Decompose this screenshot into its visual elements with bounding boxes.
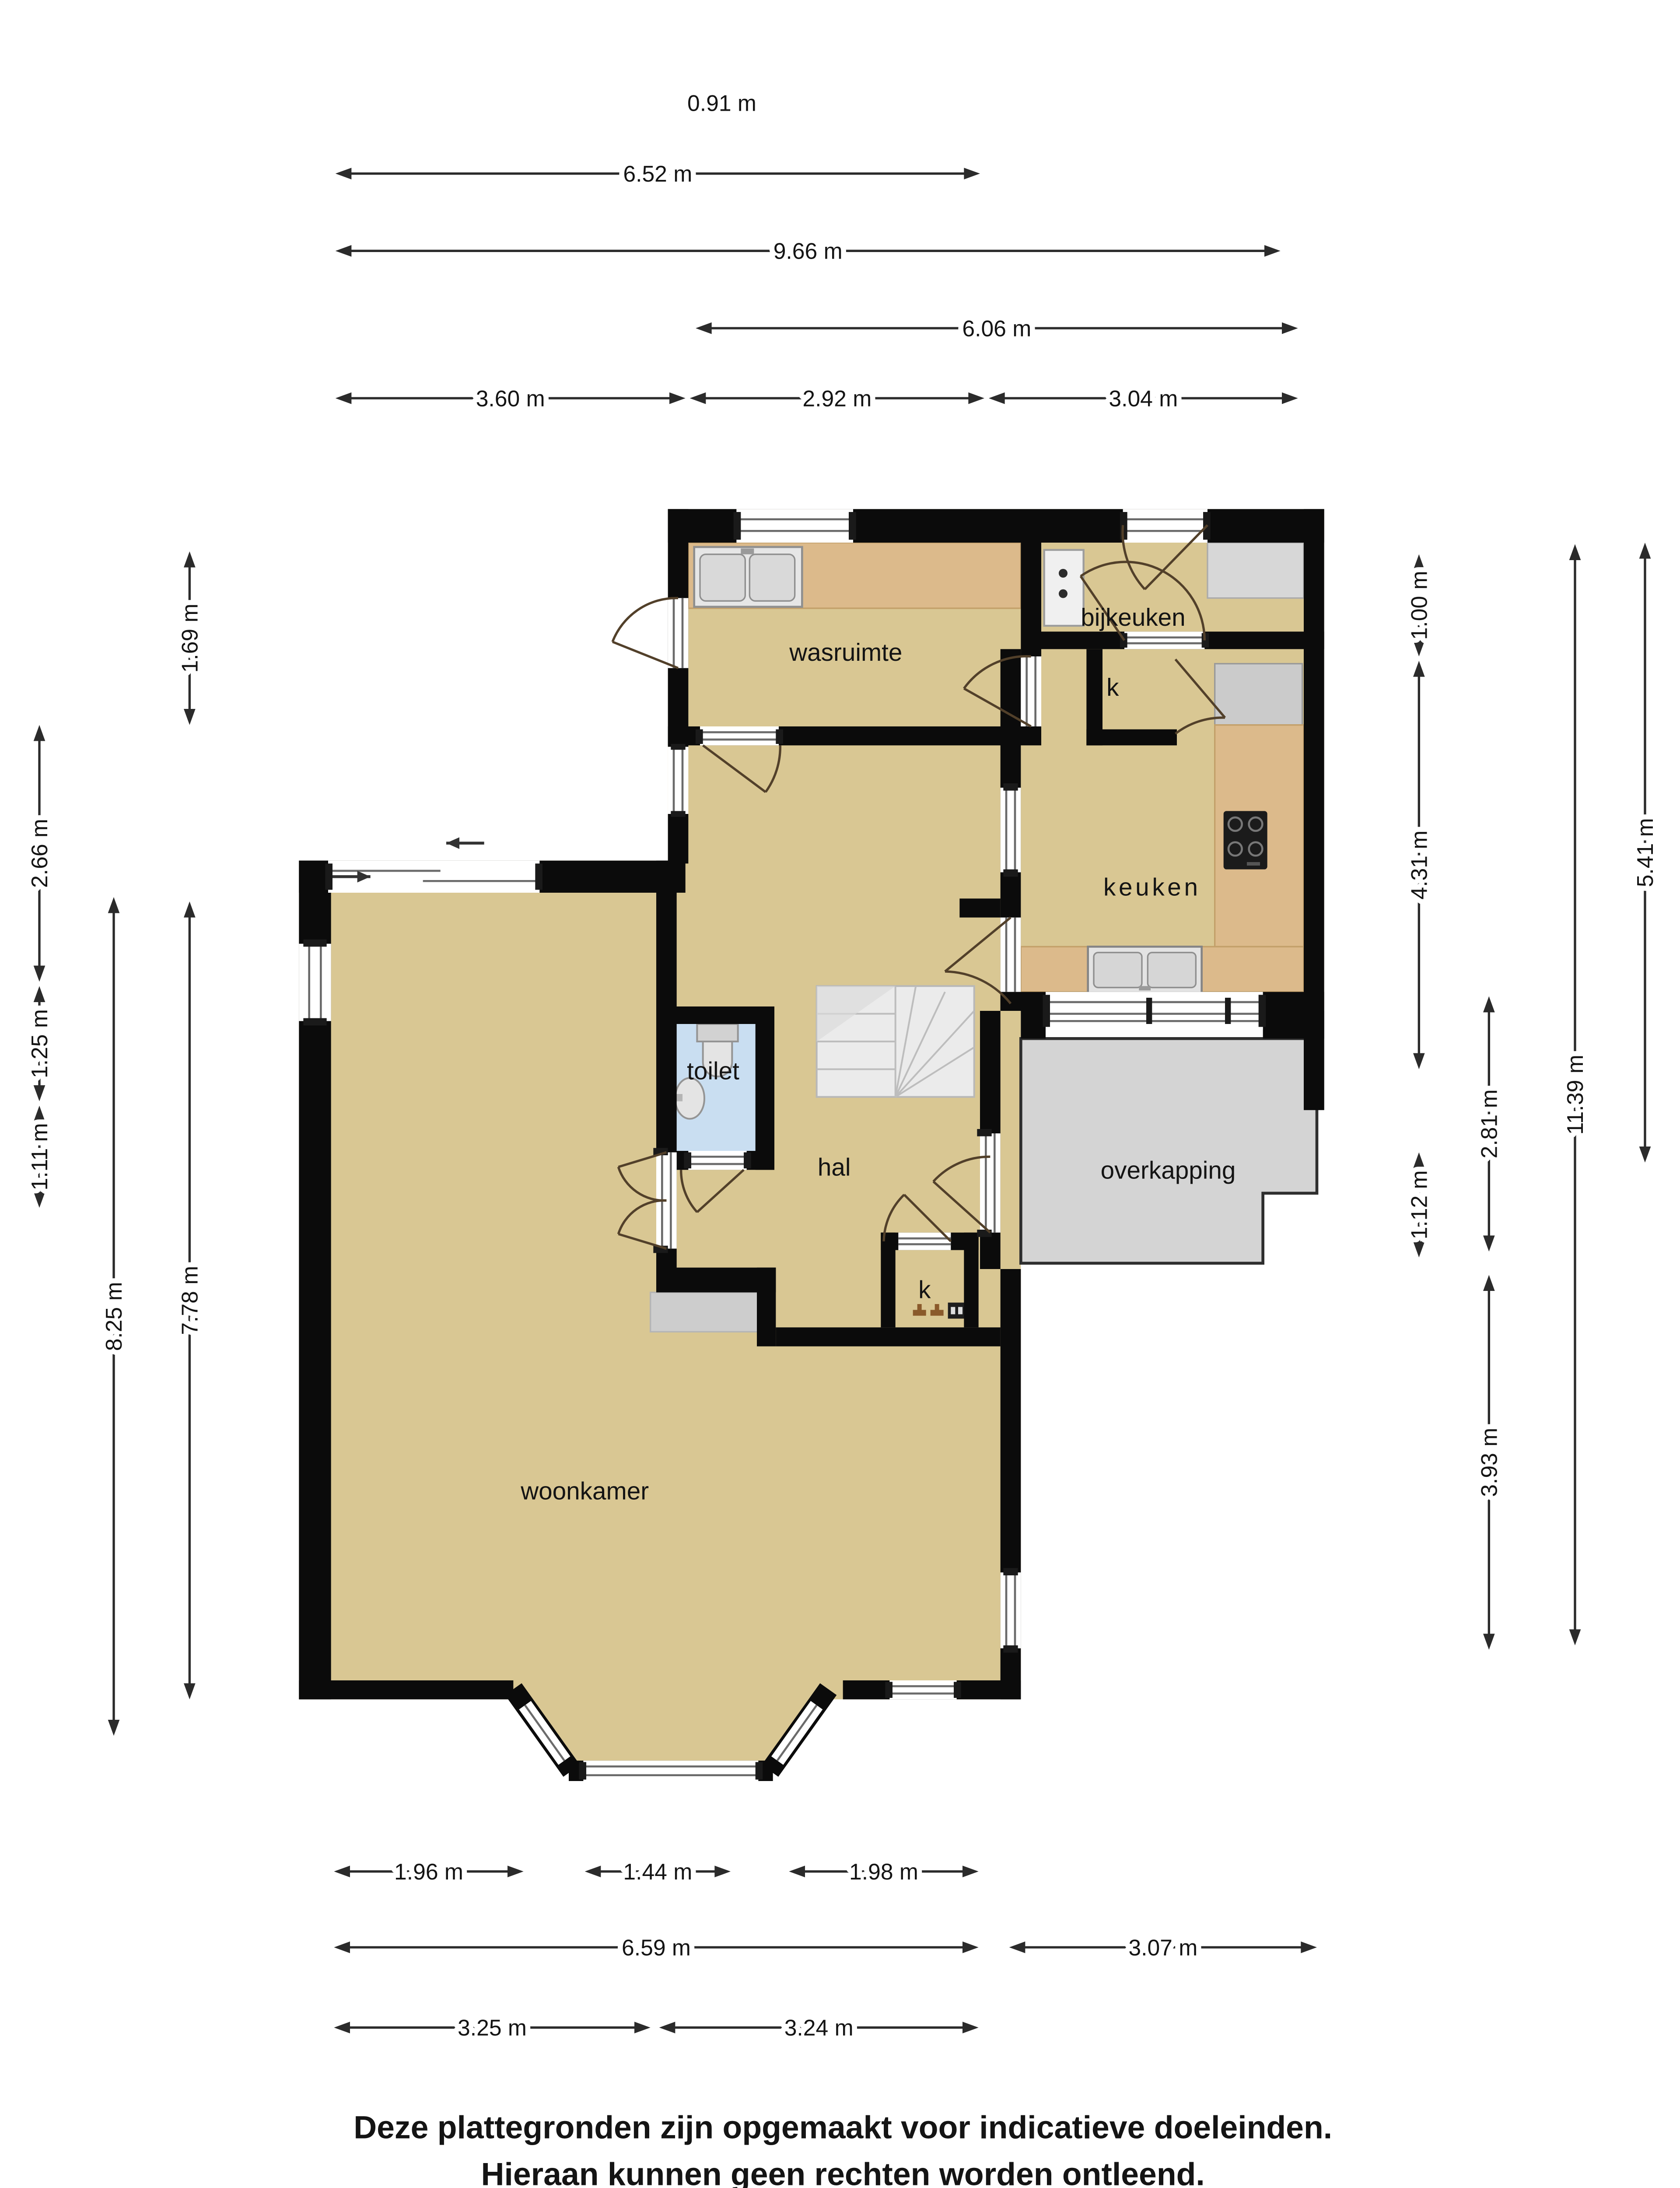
fridge-counter-icon (1215, 664, 1302, 725)
dimension: 2.92 m (690, 386, 984, 411)
dimension: 1.44 m (585, 1859, 731, 1884)
window-keuken-interior (1001, 783, 1021, 877)
window-woonkamer-bottom (885, 1680, 961, 1699)
double-sink-icon (694, 547, 802, 607)
dimension-label: 4.31 m (1406, 831, 1431, 900)
door-wasruimte-exterior (612, 598, 688, 668)
dimension: 2.81 m (1476, 996, 1501, 1252)
dimension: 9.66 m (336, 238, 1281, 264)
doormat-icon (651, 1292, 764, 1332)
dimension: 4.31 m (1406, 661, 1431, 1069)
room-label-k1: k (1106, 674, 1119, 701)
dimension-label: 8.25 m (101, 1282, 126, 1351)
disclaimer-line-2: Hieraan kunnen geen rechten worden ontle… (481, 2156, 1205, 2188)
dimension: 6.06 m (696, 316, 1298, 341)
dimension: 1.11 m (27, 1106, 52, 1208)
dimension-label: 7.78 m (177, 1266, 202, 1335)
floors (299, 509, 1324, 1771)
dimension: 6.52 m (336, 161, 980, 186)
window-landing-left (668, 744, 689, 817)
room-label-wasruimte: wasruimte (789, 639, 902, 666)
dimension: 3.93 m (1476, 1275, 1501, 1650)
room-label-overkapping: overkapping (1101, 1157, 1236, 1184)
dimension: 8.25 m (101, 897, 126, 1736)
dimension-label: 1.12 m (1406, 1170, 1431, 1239)
dimension-label: 1.69 m (177, 603, 202, 673)
room-label-toilet: toilet (687, 1058, 739, 1085)
dimension-label: 3.25 m (458, 2015, 527, 2041)
room-label-bijkeuken: bijkeuken (1081, 604, 1185, 631)
dimension-label: 3.04 m (1109, 386, 1178, 411)
dimension: 1.96 m (334, 1859, 523, 1884)
dimension-label: 3.07 m (1128, 1935, 1197, 1960)
room-label-keuken: keuken (1103, 874, 1201, 901)
dimension: 6.59 m (334, 1935, 978, 1960)
dimension: 1.25 m (27, 986, 52, 1101)
dimension: 2.66 m (27, 725, 52, 982)
dimension-label: 3.24 m (784, 2015, 854, 2041)
dimension: 11.39 m (1562, 544, 1588, 1645)
room-label-woonkamer: woonkamer (520, 1478, 649, 1505)
dimension-label: 3.93 m (1476, 1428, 1501, 1497)
dimension: 1.12 m (1406, 1152, 1431, 1257)
dimension: 3.24 m (659, 2015, 979, 2041)
disclaimer-line-1: Deze plattegronden zijn opgemaakt voor i… (353, 2110, 1332, 2146)
stairs-icon (817, 986, 974, 1097)
overkapping-area (1021, 1038, 1317, 1263)
dimension: 3.60 m (336, 386, 686, 411)
dimension-label: 1.11 m (27, 1123, 52, 1190)
dimension: 1.00 m (1406, 554, 1431, 656)
dimension: 5.41 m (1632, 543, 1658, 1163)
dimension-label: 11.39 m (1562, 1055, 1588, 1135)
dimension-label: 1.96 m (394, 1859, 463, 1884)
dimension: 3.25 m (334, 2015, 650, 2041)
dimension: 1.69 m (177, 551, 202, 725)
dimension-label-floating: 0.91 m (687, 90, 756, 116)
boiler-icon (1044, 550, 1084, 626)
dimension: 1.98 m (789, 1859, 978, 1884)
dimension: 3.07 m (1009, 1935, 1317, 1960)
dimension-label: 6.59 m (622, 1935, 691, 1960)
dimension-label: 3.60 m (476, 386, 545, 411)
floor-plan-canvas: wasruimte bijkeuken keuken toilet hal wo… (0, 0, 1680, 2188)
cooktop-icon (1224, 811, 1267, 869)
window-woonkamer-right (1001, 1568, 1021, 1652)
window-woonkamer-left (299, 940, 331, 1026)
window-wasruimte (734, 509, 856, 543)
floor-plan-page: wasruimte bijkeuken keuken toilet hal wo… (0, 0, 1680, 2188)
dimension: 3.04 m (989, 386, 1298, 411)
dimension-label: 6.06 m (962, 316, 1031, 341)
dimension-label: 9.66 m (773, 238, 843, 264)
dimension-label: 6.52 m (623, 161, 692, 186)
window-keuken-overkapping (1043, 992, 1266, 1030)
dimension: 7.78 m (177, 901, 202, 1699)
room-label-k2: k (918, 1276, 931, 1304)
bijkeuken-counter (1207, 543, 1304, 598)
dimension-label: 5.41 m (1632, 818, 1658, 887)
kitchen-sink-icon (1088, 947, 1202, 993)
dimension-label: 2.92 m (802, 386, 871, 411)
dimension-label: 2.81 m (1476, 1089, 1501, 1158)
dimension-label: 1.00 m (1406, 571, 1431, 640)
sliding-door-icon (325, 837, 542, 893)
disclaimer: Deze plattegronden zijn opgemaakt voor i… (353, 2110, 1332, 2188)
room-label-hal: hal (818, 1154, 851, 1182)
dimension-label: 1.98 m (849, 1859, 918, 1884)
dimension-label: 1.25 m (27, 1009, 52, 1078)
dimension-label: 1.44 m (623, 1859, 692, 1884)
dimension-label: 2.66 m (27, 819, 52, 888)
